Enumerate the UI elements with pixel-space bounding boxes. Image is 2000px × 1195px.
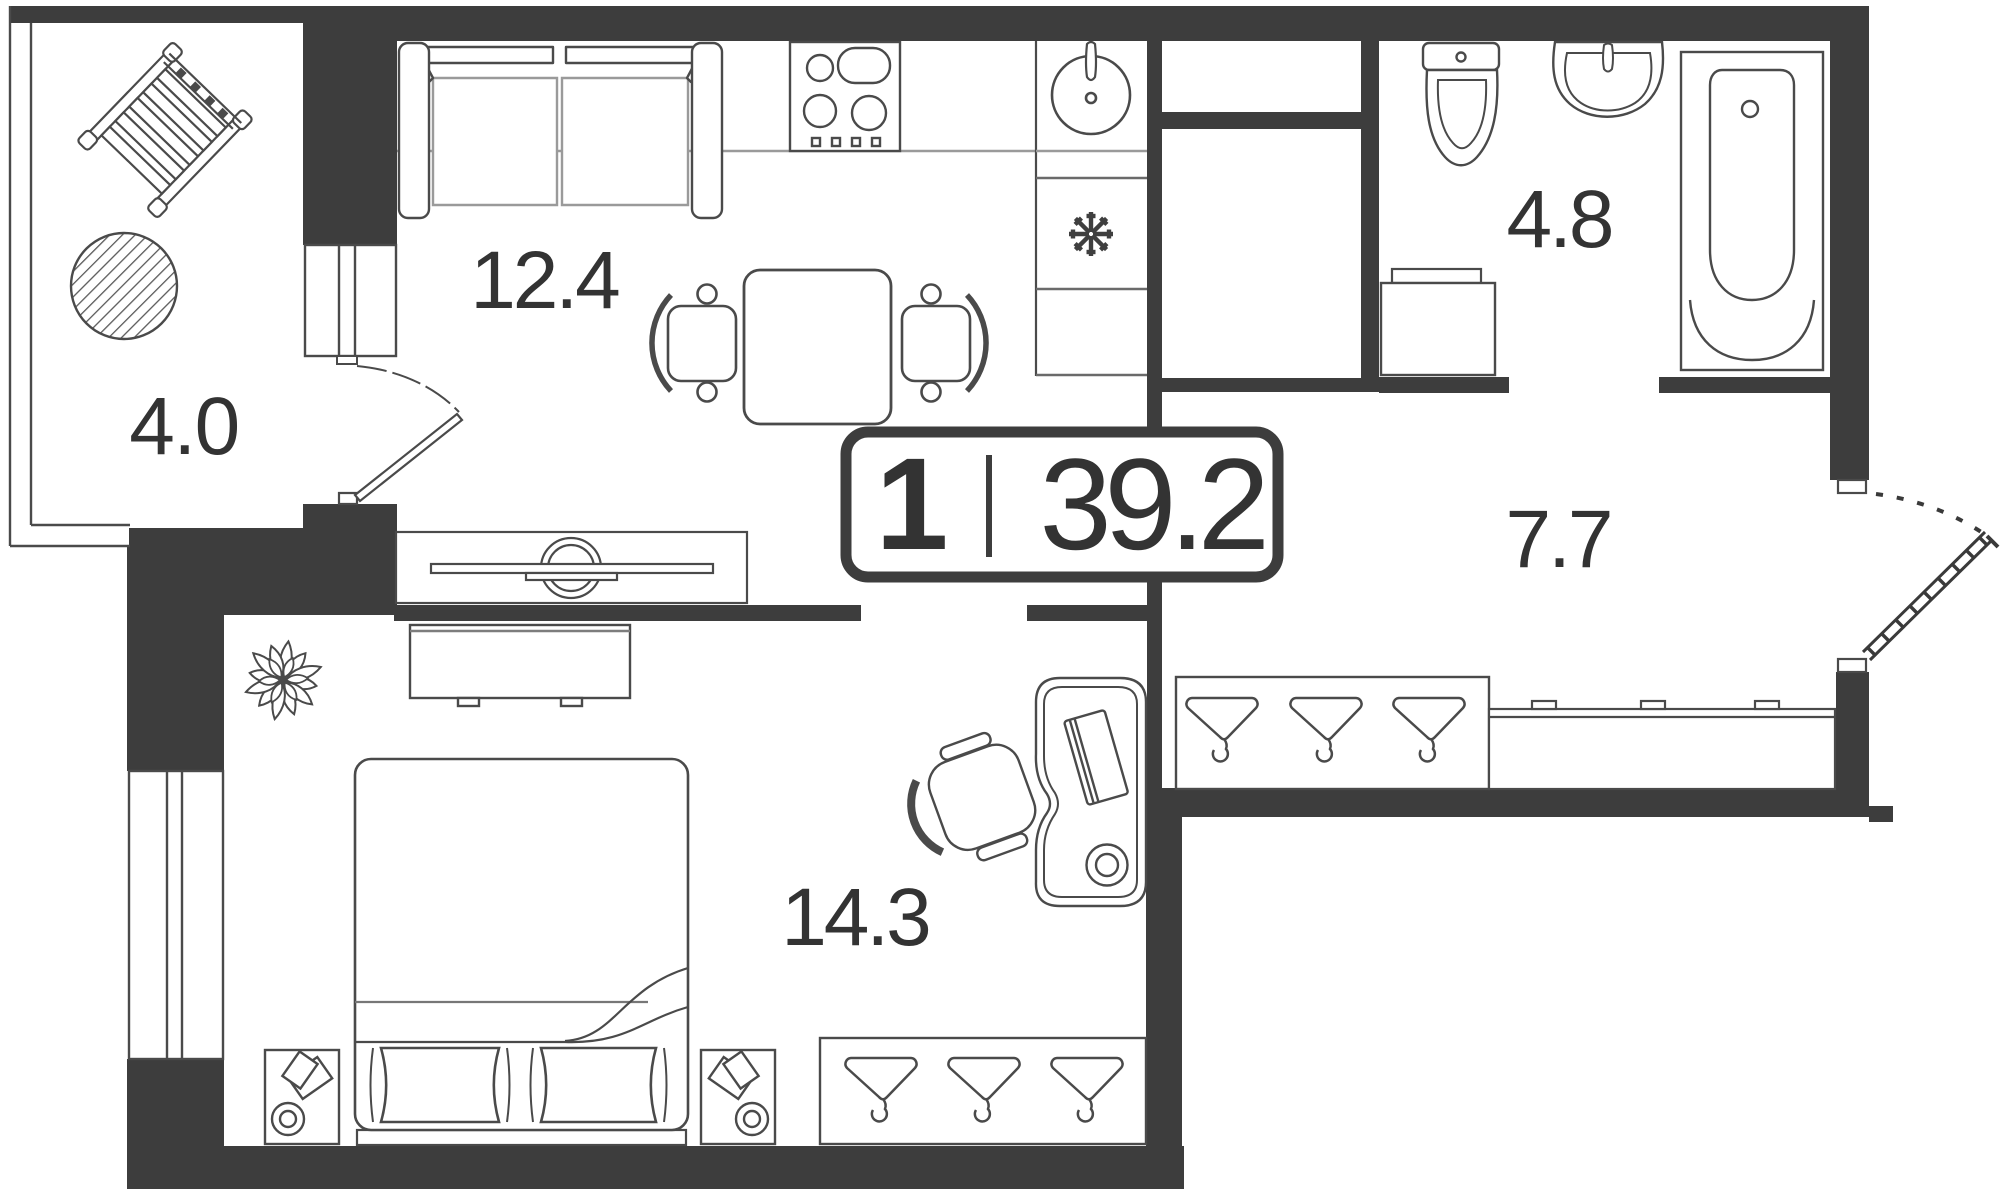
svg-text:14.3: 14.3 bbox=[781, 872, 929, 963]
svg-text:1: 1 bbox=[876, 430, 949, 577]
svg-text:39.2: 39.2 bbox=[1039, 431, 1263, 577]
svg-text:4.8: 4.8 bbox=[1507, 174, 1612, 265]
svg-text:12.4: 12.4 bbox=[470, 235, 619, 326]
svg-text:7.7: 7.7 bbox=[1506, 494, 1611, 585]
svg-text:4.0: 4.0 bbox=[129, 381, 239, 472]
